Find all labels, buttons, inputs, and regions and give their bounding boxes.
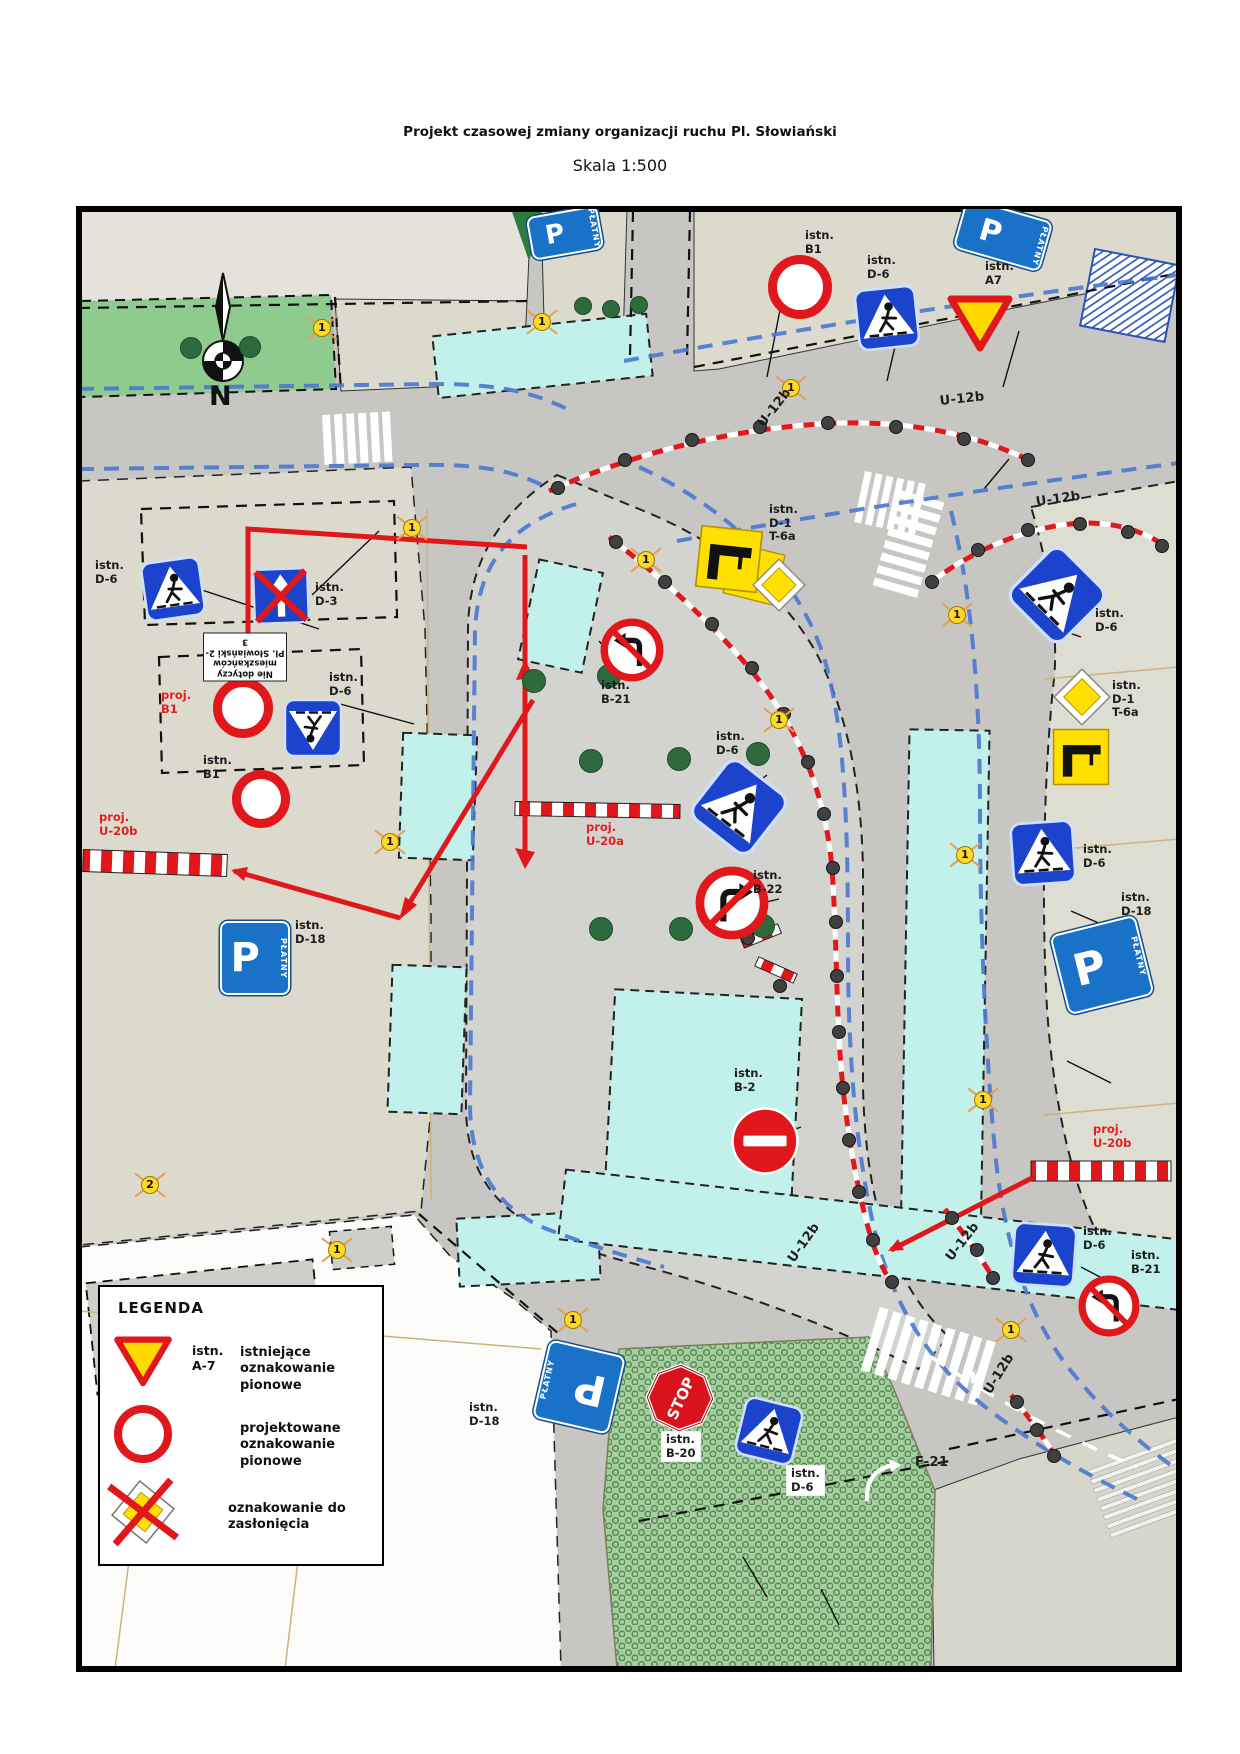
bollard-dot (821, 416, 835, 430)
legend-title: LEGENDA (118, 1299, 204, 1317)
tree-icon (522, 669, 546, 693)
sign-d1-priority-road (752, 558, 806, 612)
map-marker: 2 (140, 1175, 160, 1195)
tree-icon (239, 336, 261, 358)
note-line: Nie dotyczy (217, 669, 273, 679)
map-marker: 1 (973, 1090, 993, 1110)
a7-yield-icon (112, 1331, 174, 1389)
bollard-dot (866, 1233, 880, 1247)
sign-d6-pedestrian-crossing (852, 283, 922, 353)
legend-item1-code: istn. A-7 (192, 1343, 223, 1373)
bollard-dot (971, 543, 985, 557)
map-marker: 1 (563, 1310, 583, 1330)
bollard-dot (658, 575, 672, 589)
sign-b1-no-entry-proj (213, 678, 273, 738)
parking-p-letter: P (222, 923, 268, 993)
traffic-plan-map: P PŁATNY P PŁATNY P PŁATNY P PŁATNY P PŁ… (79, 209, 1179, 1669)
bollard-dot (970, 1243, 984, 1257)
bollard-dot (1047, 1449, 1061, 1463)
bollard-dot (826, 861, 840, 875)
bollard-dot (817, 807, 831, 821)
legend-item1-desc: istniejące oznakowanie pionowe (240, 1345, 372, 1394)
bollard-dot (773, 979, 787, 993)
tree-icon (589, 917, 613, 941)
sign-label: istn. B1 (203, 754, 232, 781)
sign-b1-no-entry (232, 770, 290, 828)
bollard-dot (832, 1025, 846, 1039)
sign-b1-no-entry (768, 255, 832, 319)
map-marker: 1 (402, 518, 422, 538)
map-marker: 1 (312, 318, 332, 338)
map-marker: 1 (380, 832, 400, 852)
sign-label: istn. D-6 (1083, 843, 1112, 870)
bollard-dot (1021, 453, 1035, 467)
bollard-dot (842, 1133, 856, 1147)
bollard-dot (618, 453, 632, 467)
tree-icon (669, 917, 693, 941)
bollard-dot (1030, 1423, 1044, 1437)
sign-label: istn. D-18 (295, 919, 326, 946)
sign-label: istn. D-18 (469, 1401, 500, 1428)
sign-label: istn. D-1 T-6a (769, 503, 798, 544)
bollard-dot (609, 535, 623, 549)
sign-label: istn. D-6 (329, 671, 358, 698)
sign-b2-no-entry (729, 1105, 801, 1177)
sign-parking-platny: P PŁATNY (220, 921, 290, 995)
note-plate: Nie dotyczy mieszkańców Pl. Słowiański 2… (203, 633, 287, 682)
tree-icon (574, 297, 592, 315)
bollard-dot (889, 420, 903, 434)
sign-d1-priority-road (1053, 668, 1111, 726)
sign-label: F-21 (915, 1455, 948, 1470)
sign-label: istn. D-1 T-6a (1112, 679, 1141, 720)
bollard-dot (801, 755, 815, 769)
sign-label: istn. D-6 (867, 254, 896, 281)
compass-north-label: N (209, 381, 232, 412)
scale-label: Skala 1:500 (0, 156, 1240, 175)
sign-label: proj. U-20b (99, 811, 137, 838)
sign-label: istn. D-6 (1095, 607, 1124, 634)
bollard-dot (986, 1271, 1000, 1285)
legend: LEGENDA istn. A-7 istniejące oznakowanie… (98, 1285, 384, 1566)
bollard-dot (685, 433, 699, 447)
legend-item2-desc: projektowane oznakowanie pionowe (240, 1421, 372, 1470)
bollard-dot (925, 575, 939, 589)
sign-b21-no-left-turn (1078, 1275, 1140, 1337)
sign-label: istn. B-21 (1131, 1249, 1161, 1276)
bollard-dot (852, 1185, 866, 1199)
map-marker: 1 (769, 710, 789, 730)
note-line: mieszkańców (213, 658, 277, 668)
bollard-dot (1155, 539, 1169, 553)
hatched-zone (1080, 249, 1179, 342)
bollard-dot (551, 481, 565, 495)
bollard-dot (705, 617, 719, 631)
map-marker: 1 (532, 312, 552, 332)
bollard-dot (1073, 517, 1087, 531)
tree-icon (746, 742, 770, 766)
sign-label: proj. U-20b (1093, 1123, 1131, 1150)
covered-sign-icon (104, 1475, 182, 1549)
sign-label: istn. D-6 (95, 559, 124, 586)
map-marker: 1 (947, 605, 967, 625)
legend-item3-desc: oznakowanie do zasłonięcia (228, 1501, 360, 1534)
sign-label: istn. A7 (985, 260, 1014, 287)
note-line: Pl. Słowiański 2-3 (205, 637, 284, 658)
sign-label: istn. D-3 (315, 581, 344, 608)
sign-label: istn. D-18 (1121, 891, 1152, 918)
tree-icon (180, 337, 202, 359)
parking-p-letter: P (528, 211, 582, 259)
bollard-dot (829, 915, 843, 929)
sign-d3-one-way-covered (249, 564, 313, 628)
bollard-dot (1021, 523, 1035, 537)
sign-label: istn. B-21 (601, 679, 631, 706)
sign-label: istn. D-6 (716, 730, 745, 757)
tree-icon (630, 296, 648, 314)
bollard-dot (745, 661, 759, 675)
sign-label: istn. B-2 (734, 1067, 763, 1094)
parking-platny-band: PŁATNY (268, 923, 288, 993)
bollard-dot (945, 1211, 959, 1225)
sign-label: istn. D-6 (786, 1465, 825, 1496)
proposed-sign-icon (114, 1405, 172, 1463)
sign-a7-yield (945, 290, 1015, 354)
bollard-dot (885, 1275, 899, 1289)
bollard-dot (1010, 1395, 1024, 1409)
bollard-dot (836, 1081, 850, 1095)
sign-d6-pedestrian-crossing (138, 554, 208, 624)
tree-icon (667, 747, 691, 771)
sign-label: istn. B-22 (753, 869, 783, 896)
sign-label: proj. B1 (161, 689, 191, 716)
sign-label: proj. U-20a (586, 821, 624, 848)
sign-d6-pedestrian-crossing (1008, 818, 1078, 888)
page-title: Projekt czasowej zmiany organizacji ruch… (0, 124, 1240, 140)
sign-label: istn. B1 (805, 229, 834, 256)
bollard-dot (957, 432, 971, 446)
tree-icon (602, 300, 620, 318)
map-marker: 1 (955, 845, 975, 865)
bollard-dot (830, 969, 844, 983)
sign-label: istn. D-6 (1083, 1225, 1112, 1252)
sign-t6a-plate (1052, 728, 1110, 786)
sign-b21-no-left-turn (600, 618, 664, 682)
map-marker: 1 (1001, 1320, 1021, 1340)
sign-label: istn. B-20 (661, 1431, 701, 1462)
bollard-dot (1121, 525, 1135, 539)
map-marker: 1 (636, 550, 656, 570)
sign-d6-pedestrian-crossing (283, 698, 343, 758)
tree-icon (579, 749, 603, 773)
map-marker: 1 (327, 1240, 347, 1260)
sign-d6-pedestrian-crossing (1009, 1220, 1079, 1290)
